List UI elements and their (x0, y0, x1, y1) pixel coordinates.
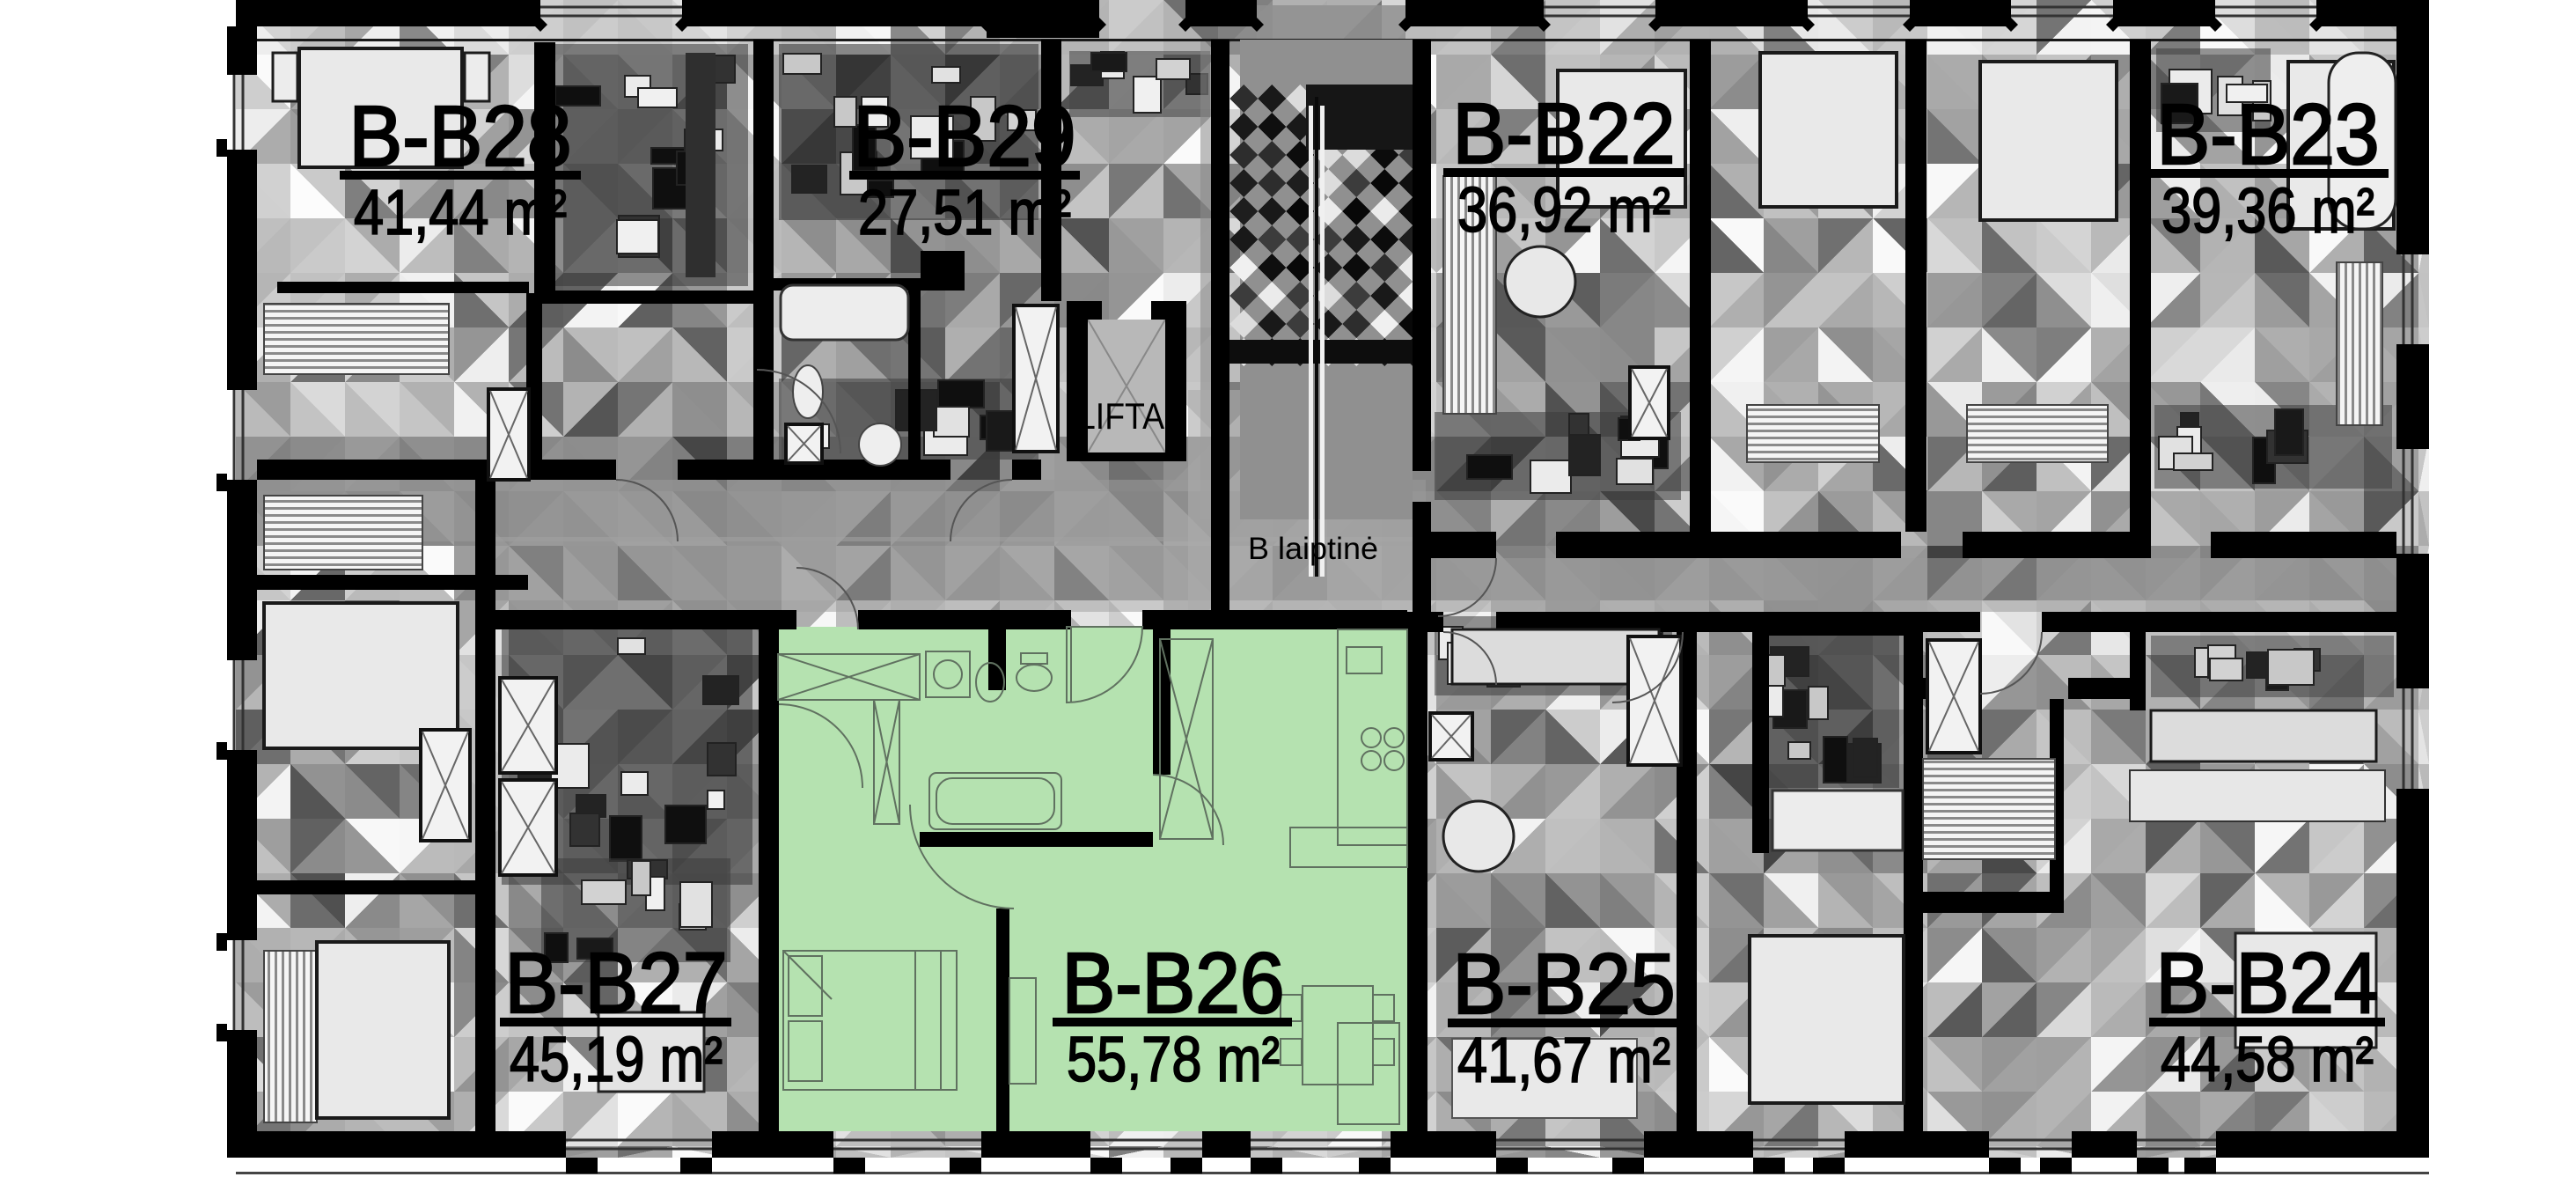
svg-text:LIFTAS: LIFTAS (1077, 395, 1186, 437)
svg-text:27,51 m²: 27,51 m² (858, 178, 1071, 248)
svg-text:41,67 m²: 41,67 m² (1457, 1026, 1670, 1096)
svg-text:B-B25: B-B25 (1453, 936, 1676, 1032)
svg-text:39,36 m²: 39,36 m² (2161, 176, 2374, 246)
svg-text:B-B27: B-B27 (505, 935, 728, 1031)
svg-text:41,44 m²: 41,44 m² (354, 178, 567, 248)
svg-text:B-B24: B-B24 (2156, 935, 2379, 1031)
svg-text:B-B23: B-B23 (2157, 86, 2380, 182)
svg-text:45,19 m²: 45,19 m² (510, 1025, 723, 1095)
svg-text:B-B26: B-B26 (1062, 935, 1285, 1031)
svg-text:B-B22: B-B22 (1453, 85, 1676, 181)
svg-text:44,58 m²: 44,58 m² (2161, 1025, 2374, 1095)
svg-text:55,78 m²: 55,78 m² (1067, 1025, 1280, 1095)
svg-text:B laiptinė: B laiptinė (1248, 532, 1378, 566)
svg-text:36,92 m²: 36,92 m² (1457, 175, 1670, 246)
svg-text:B-B29: B-B29 (854, 88, 1076, 184)
svg-text:B-B28: B-B28 (349, 88, 572, 184)
